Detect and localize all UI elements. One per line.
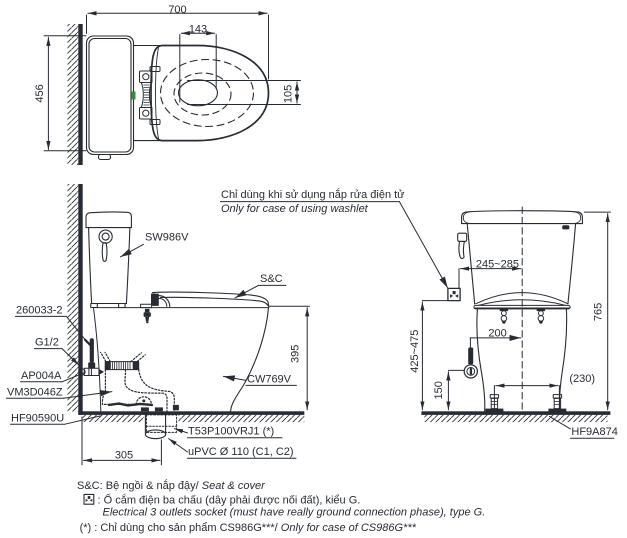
svg-text:260033-2: 260033-2: [16, 305, 63, 317]
svg-text:uPVC Ø 110 (C1, C2): uPVC Ø 110 (C1, C2): [188, 446, 294, 458]
svg-text:305: 305: [115, 449, 133, 461]
svg-text:S&C: S&C: [260, 273, 283, 285]
svg-text:G1/2: G1/2: [35, 337, 59, 349]
svg-text:143: 143: [189, 23, 207, 35]
svg-text:S&C: Bệ ngồi & nắp đậy/ Seat &: S&C: Bệ ngồi & nắp đậy/ Seat & cover: [77, 479, 266, 492]
svg-text:CW769V: CW769V: [247, 373, 292, 385]
svg-text:Only for case of using washlet: Only for case of using washlet: [221, 203, 369, 215]
svg-text:HF9A874: HF9A874: [571, 426, 617, 438]
svg-text:: Ổ cắm điện ba chấu (dây phải: : Ổ cắm điện ba chấu (dây phải được nối …: [98, 493, 361, 506]
svg-text:Chỉ dùng khi sử dụng nắp rửa đ: Chỉ dùng khi sử dụng nắp rửa điện tử: [221, 188, 405, 201]
svg-text:(230): (230): [569, 373, 595, 385]
svg-text:SW986V: SW986V: [145, 231, 189, 243]
svg-text:395: 395: [289, 345, 301, 363]
svg-text:765: 765: [593, 303, 605, 321]
svg-text:(*) : Chỉ dùng cho sản phẩm CS: (*) : Chỉ dùng cho sản phẩm CS986G***/ O…: [80, 522, 417, 534]
svg-text:456: 456: [34, 84, 46, 102]
svg-text:AP004A: AP004A: [21, 370, 62, 382]
svg-text:700: 700: [168, 4, 186, 16]
svg-text:VM3D046Z: VM3D046Z: [7, 386, 63, 398]
svg-text:HF90590U: HF90590U: [11, 412, 64, 424]
svg-text:105: 105: [283, 85, 295, 103]
svg-text:425~475: 425~475: [409, 330, 421, 373]
svg-text:Electrical 3 outlets socket (m: Electrical 3 outlets socket (must have r…: [103, 506, 486, 518]
svg-text:150: 150: [433, 381, 445, 399]
svg-text:T53P100VRJ1 (*): T53P100VRJ1 (*): [188, 425, 274, 437]
